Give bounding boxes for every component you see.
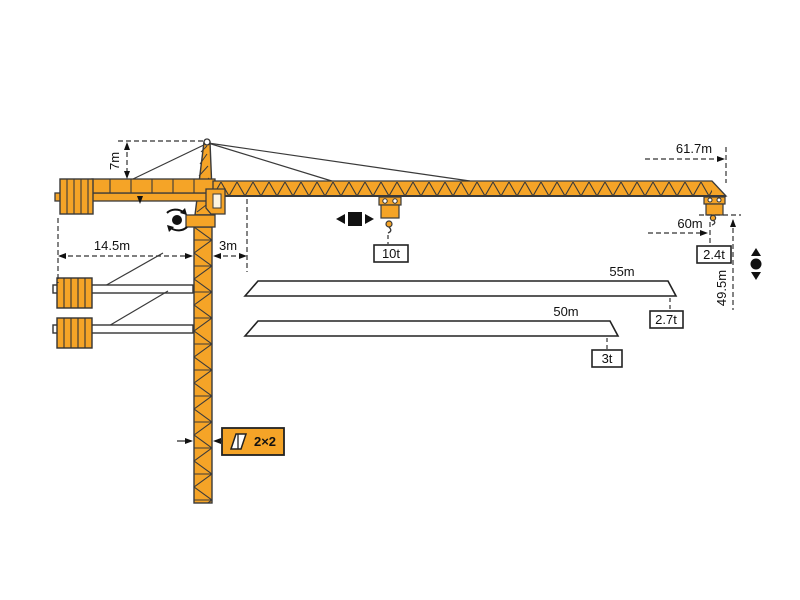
ballast-block-1: [57, 278, 92, 308]
tip-load-main-label: 2.4t: [703, 247, 725, 262]
main-jib: [213, 181, 726, 196]
max-capacity-label: 10t: [382, 246, 400, 261]
head-height-label: 7m: [107, 152, 122, 170]
mast-section-label: 2×2: [254, 434, 276, 449]
tip-load-55m-label: 2.7t: [655, 312, 677, 327]
cab-window: [213, 194, 221, 208]
tip-load-50m-label: 3t: [602, 351, 613, 366]
crane-spec-diagram: 7m 14.5m 3m 61.7m 60m 49.5m: [0, 0, 800, 600]
background: [0, 0, 800, 600]
ballast-block-2: [57, 318, 92, 348]
max-radius-label: 61.7m: [676, 141, 712, 156]
slewing-platform: [186, 215, 215, 227]
tower-crane-diagram: 7m 14.5m 3m 61.7m 60m 49.5m: [0, 0, 800, 600]
hook-mid: [386, 221, 392, 227]
capacity-2-4t: 2.4t: [697, 246, 731, 263]
tower-mast: [194, 227, 212, 503]
radius-60m-label: 60m: [677, 216, 702, 231]
jib-50m-label: 50m: [553, 304, 578, 319]
apex-pin: [204, 139, 210, 145]
hook-height-label: 49.5m: [714, 270, 729, 306]
min-radius-label: 3m: [219, 238, 237, 253]
operator-cab: [206, 189, 225, 214]
jib-55m-label: 55m: [609, 264, 634, 279]
counterjib-radius-label: 14.5m: [94, 238, 130, 253]
hook-tip: [710, 215, 715, 220]
